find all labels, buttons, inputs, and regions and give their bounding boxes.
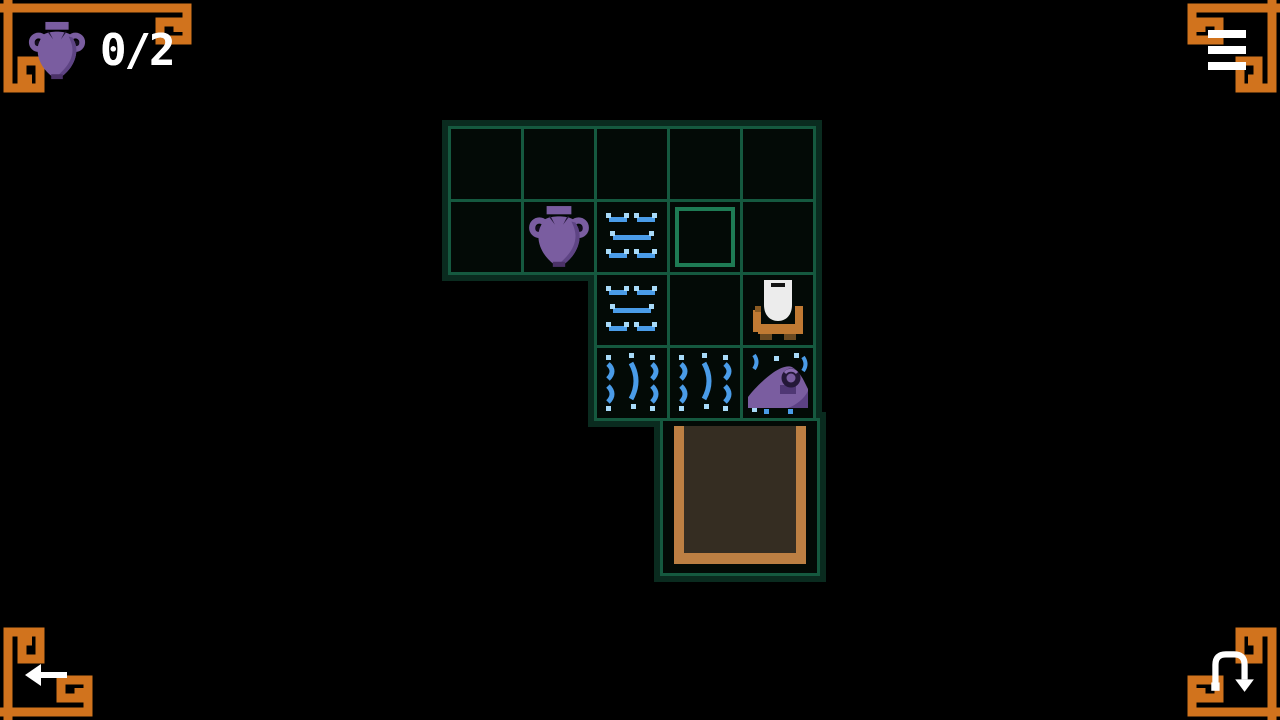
waterfall-tile-icon: [673, 351, 737, 415]
cell-r3c3-waterfall: [667, 345, 743, 421]
sunken-amphora-sprite: [746, 351, 810, 415]
cell-r1c2-water: [594, 199, 670, 275]
player-sprite[interactable]: [746, 278, 810, 342]
cell-r1c1-amphora: [521, 199, 597, 275]
cell-r2c2-water: [594, 272, 670, 348]
cell-r0c3: [667, 126, 743, 202]
amphora-socket: [675, 207, 735, 267]
cell-r0c0: [448, 126, 524, 202]
water-tile-icon: [600, 205, 664, 269]
game-screen: 0/2: [0, 0, 1280, 720]
cell-r3c2-waterfall: [594, 345, 670, 421]
cell-r1c0: [448, 199, 524, 275]
water-tile-icon: [600, 278, 664, 342]
cell-r3c4-sunken-amphora: [740, 345, 816, 421]
exit-door: [660, 418, 820, 576]
cell-r0c4: [740, 126, 816, 202]
cell-r1c4: [740, 199, 816, 275]
cell-r0c2: [594, 126, 670, 202]
exit-door-frame: [674, 426, 806, 564]
exit-door-interior: [684, 426, 796, 553]
puzzle-board: [0, 0, 1280, 720]
cell-r0c1: [521, 126, 597, 202]
waterfall-tile-icon: [600, 351, 664, 415]
cell-r2c3: [667, 272, 743, 348]
amphora-sprite[interactable]: [526, 204, 592, 270]
cell-r1c3-socket: [667, 199, 743, 275]
cell-r2c4-player: [740, 272, 816, 348]
